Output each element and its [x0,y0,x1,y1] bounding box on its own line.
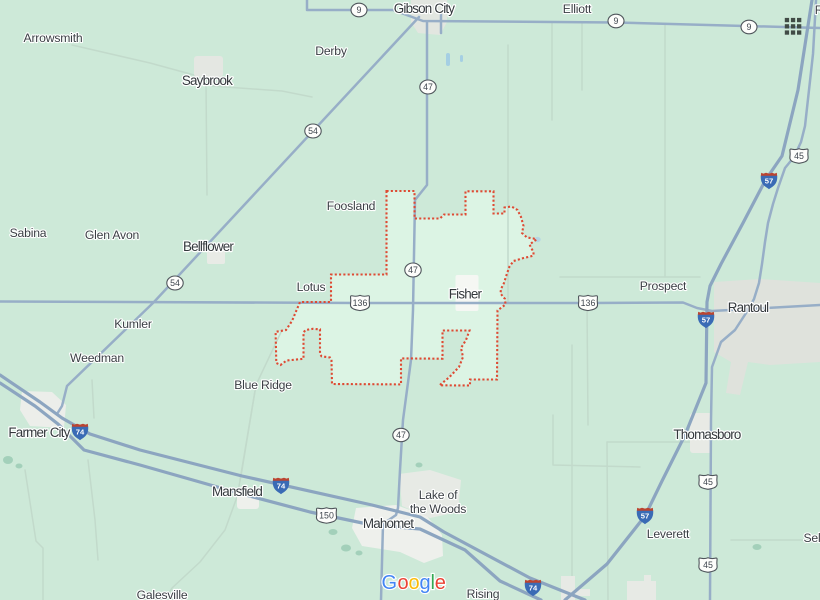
svg-text:Sel: Sel [803,531,820,545]
svg-text:Bellflower: Bellflower [183,239,234,254]
svg-text:45: 45 [794,151,804,161]
svg-text:47: 47 [396,430,406,440]
svg-text:136: 136 [581,298,596,308]
svg-text:9: 9 [747,22,752,32]
svg-text:Rising: Rising [467,587,500,600]
svg-text:Kumler: Kumler [114,317,152,331]
svg-text:45: 45 [703,477,713,487]
svg-text:Arrowsmith: Arrowsmith [24,31,83,45]
svg-text:Mansfield: Mansfield [212,484,262,499]
svg-text:Rantoul: Rantoul [728,300,769,315]
svg-text:Weedman: Weedman [70,351,124,365]
svg-text:Glen Avon: Glen Avon [85,228,139,242]
svg-text:57: 57 [765,177,773,186]
svg-text:Mahomet: Mahomet [363,516,414,531]
svg-text:Blue Ridge: Blue Ridge [234,378,292,392]
svg-text:57: 57 [702,316,710,325]
svg-text:74: 74 [529,584,538,593]
svg-text:Foosland: Foosland [327,199,376,213]
svg-text:Thomasboro: Thomasboro [673,427,741,442]
svg-text:Derby: Derby [315,44,348,58]
svg-text:136: 136 [353,298,368,308]
svg-text:Prospect: Prospect [640,279,687,293]
svg-text:54: 54 [170,278,180,288]
svg-text:Galesville: Galesville [137,588,188,600]
svg-text:Leverett: Leverett [647,527,690,541]
svg-text:54: 54 [308,126,318,136]
svg-text:150: 150 [319,511,334,521]
svg-text:R: R [815,3,820,17]
svg-text:Gibson City: Gibson City [394,1,456,16]
svg-text:9: 9 [614,16,619,26]
svg-text:47: 47 [423,82,433,92]
svg-text:Lotus: Lotus [297,280,326,294]
svg-text:57: 57 [641,512,649,521]
svg-text:74: 74 [277,482,286,491]
svg-text:Saybrook: Saybrook [182,73,233,88]
svg-text:Google: Google [382,572,446,594]
svg-text:Fisher: Fisher [449,287,483,302]
svg-text:9: 9 [357,5,362,15]
svg-text:Farmer City: Farmer City [8,425,70,440]
svg-text:74: 74 [76,428,85,437]
svg-text:47: 47 [408,265,418,275]
svg-text:Elliott: Elliott [563,2,592,16]
svg-text:Sabina: Sabina [10,226,47,240]
svg-text:the Woods: the Woods [410,502,466,516]
svg-text:Lake of: Lake of [419,488,458,502]
svg-text:45: 45 [703,560,713,570]
